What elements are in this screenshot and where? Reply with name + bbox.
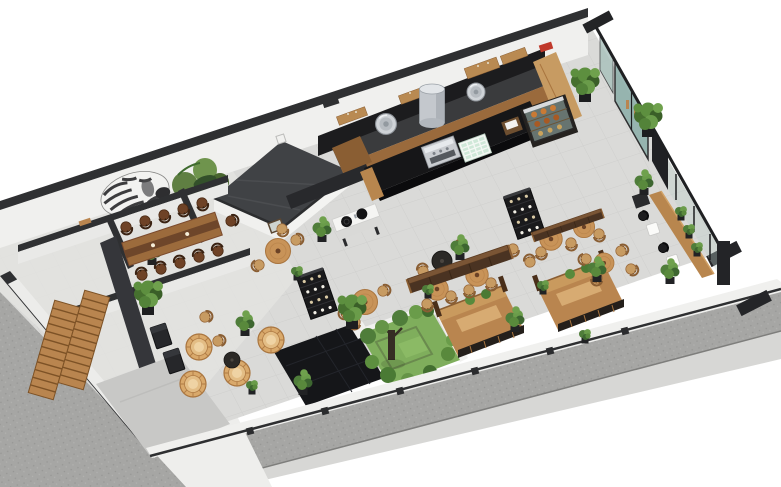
tableRD bbox=[224, 352, 240, 368]
tableR bbox=[266, 239, 291, 264]
rattan bbox=[258, 327, 284, 353]
potS bbox=[376, 114, 397, 135]
corner-pier bbox=[717, 241, 730, 285]
hood bbox=[420, 84, 445, 128]
pillar bbox=[276, 134, 286, 144]
floor-plan-svg bbox=[0, 0, 781, 487]
door-handle bbox=[626, 100, 629, 109]
rattan bbox=[180, 371, 206, 397]
potS bbox=[467, 83, 485, 101]
rattan bbox=[186, 334, 212, 360]
floor-plan-render bbox=[0, 0, 781, 487]
